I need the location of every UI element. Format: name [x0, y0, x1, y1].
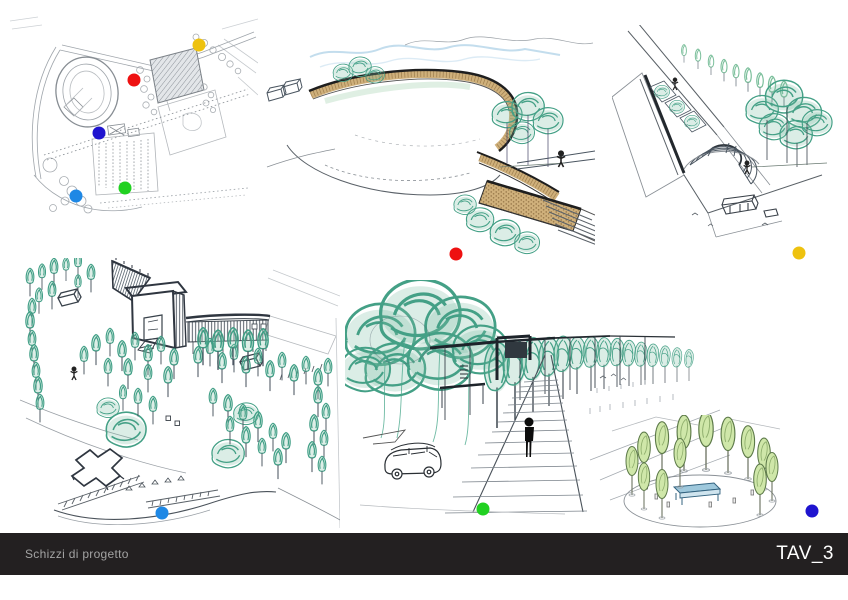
site-plan-sketch [8, 15, 258, 215]
marker-dot-sketch-red [450, 248, 463, 261]
title-bar: Schizzi di progetto TAV_3 [0, 533, 848, 575]
plaza-amphitheatre-sketch [612, 25, 840, 260]
marker-dot-plan-yellow [193, 39, 206, 52]
marker-dot-plan-blue [93, 127, 106, 140]
presentation-board: Schizzi di progetto TAV_3 [0, 0, 848, 600]
marker-dot-sketch-blue [806, 505, 819, 518]
park-building-sketch [18, 258, 340, 535]
marker-dot-sketch-green [477, 503, 490, 516]
marker-dot-plan-red [128, 74, 141, 87]
marker-dot-plan-green [119, 182, 132, 195]
marker-dot-sketch-azure [156, 507, 169, 520]
tree-circle-sketch [610, 415, 795, 537]
ring-embankment-sketch [265, 15, 595, 265]
sheet-number: TAV_3 [776, 543, 834, 565]
board-caption: Schizzi di progetto [25, 547, 129, 561]
marker-dot-sketch-yellow [793, 247, 806, 260]
marker-dot-plan-azure [70, 190, 83, 203]
